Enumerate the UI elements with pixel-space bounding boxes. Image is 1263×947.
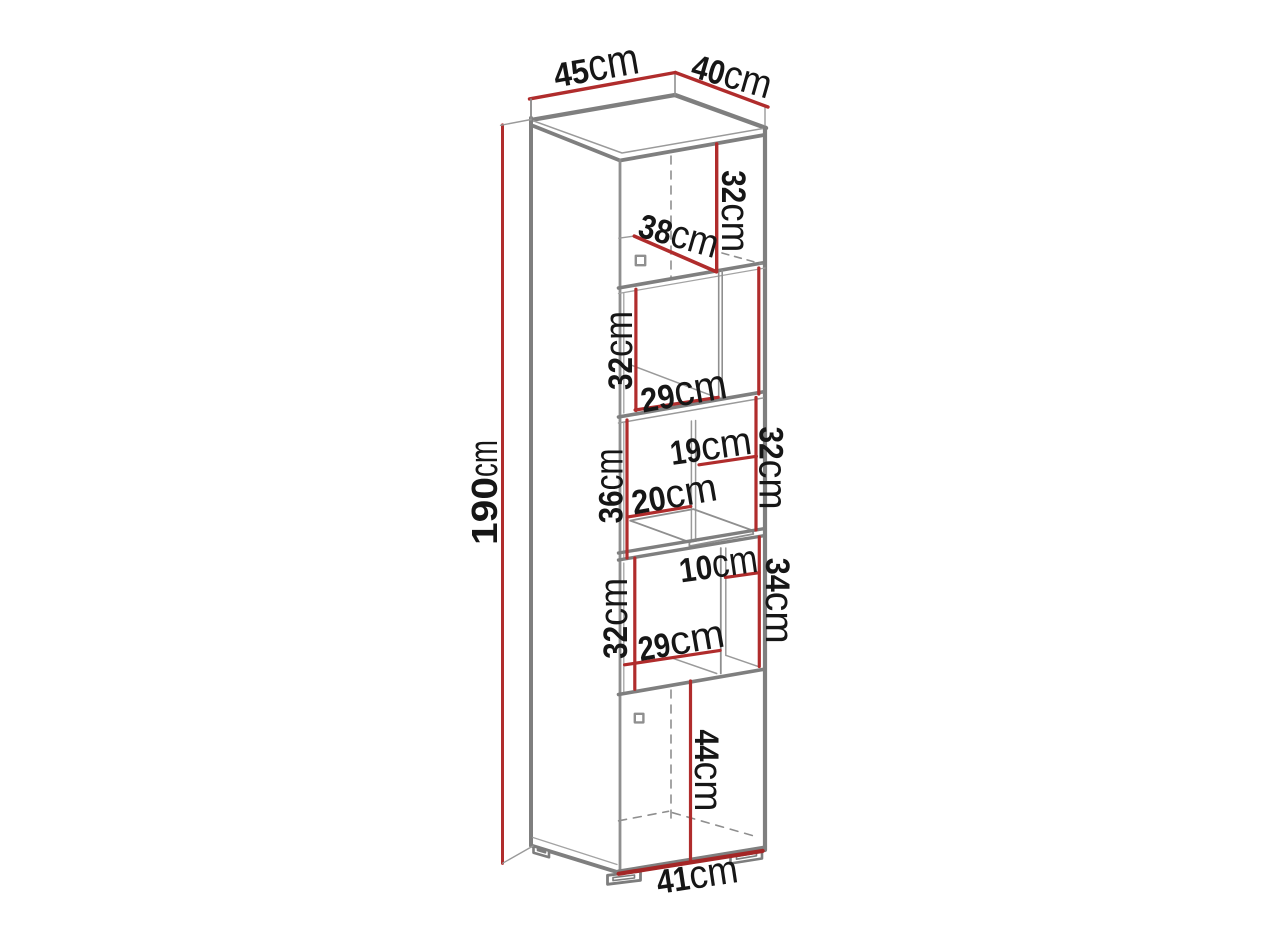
svg-text:32cm: 32cm xyxy=(713,170,757,252)
svg-text:36cm: 36cm xyxy=(588,448,632,523)
svg-text:32cm: 32cm xyxy=(751,427,795,510)
svg-text:34cm: 34cm xyxy=(757,558,801,644)
svg-text:32cm: 32cm xyxy=(592,578,636,659)
svg-text:32cm: 32cm xyxy=(597,311,641,390)
svg-text:44cm: 44cm xyxy=(686,730,730,812)
svg-text:190cm: 190cm xyxy=(462,440,506,545)
